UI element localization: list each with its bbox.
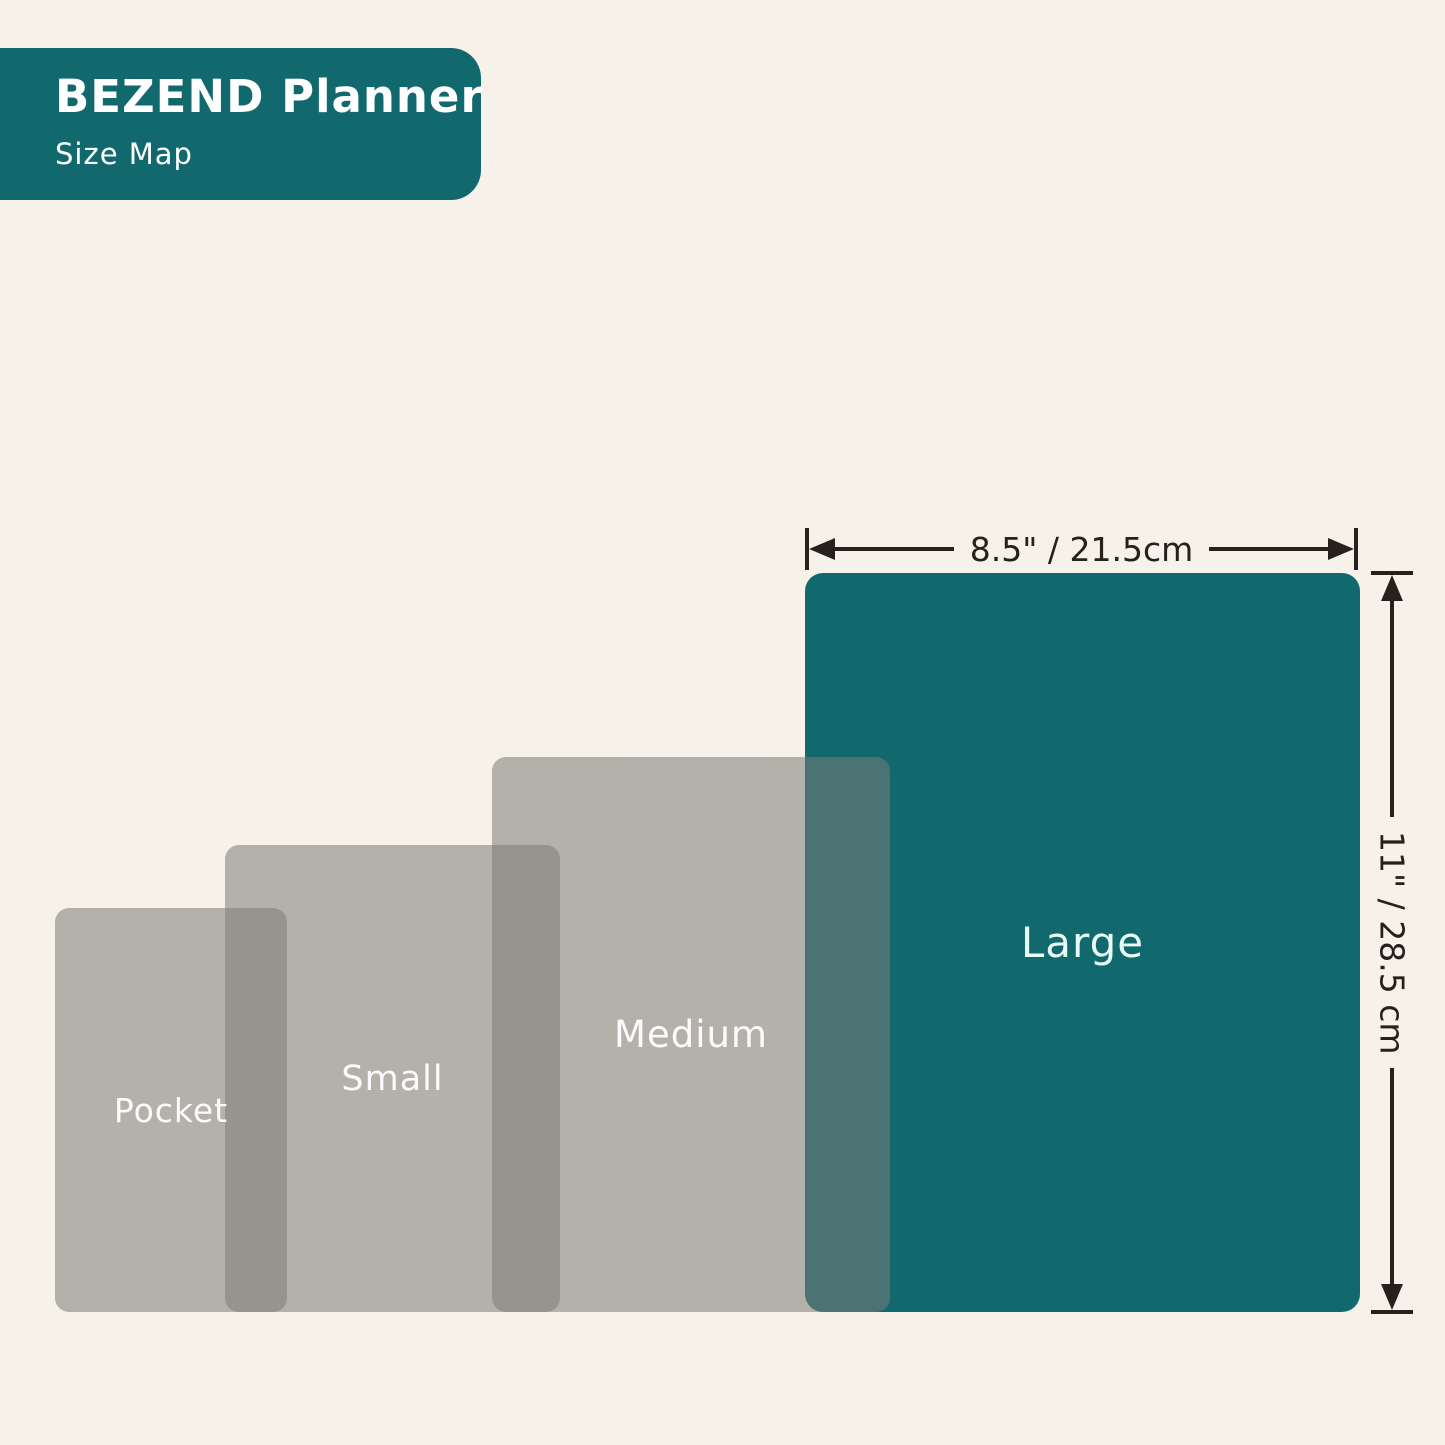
page-subtitle: Size Map: [55, 137, 481, 171]
width-dimension-label: 8.5" / 21.5cm: [970, 530, 1194, 569]
width-dim-line-right: [1209, 547, 1328, 551]
width-dimension: 8.5" / 21.5cm: [805, 528, 1358, 570]
arrow-up-icon: [1381, 575, 1403, 601]
header-badge: BEZEND Planner Size Map: [0, 48, 481, 200]
arrow-right-icon: [1328, 538, 1354, 560]
size-rect-pocket: Pocket: [55, 908, 287, 1312]
height-dim-line-bottom: [1390, 1068, 1394, 1284]
page-title: BEZEND Planner: [55, 70, 481, 123]
size-label-small: Small: [341, 1059, 443, 1099]
height-dimension: 11" / 28.5 cm: [1371, 571, 1413, 1314]
arrow-left-icon: [809, 538, 835, 560]
size-label-medium: Medium: [614, 1013, 768, 1056]
width-dim-right-tick: [1354, 528, 1358, 570]
height-dim-bottom-tick: [1371, 1310, 1413, 1314]
size-label-large: Large: [1021, 918, 1144, 967]
width-dim-line-left: [835, 547, 954, 551]
height-dimension-label: 11" / 28.5 cm: [1373, 831, 1412, 1055]
height-dim-line-top: [1390, 601, 1394, 817]
arrow-down-icon: [1381, 1284, 1403, 1310]
size-label-pocket: Pocket: [114, 1091, 228, 1130]
